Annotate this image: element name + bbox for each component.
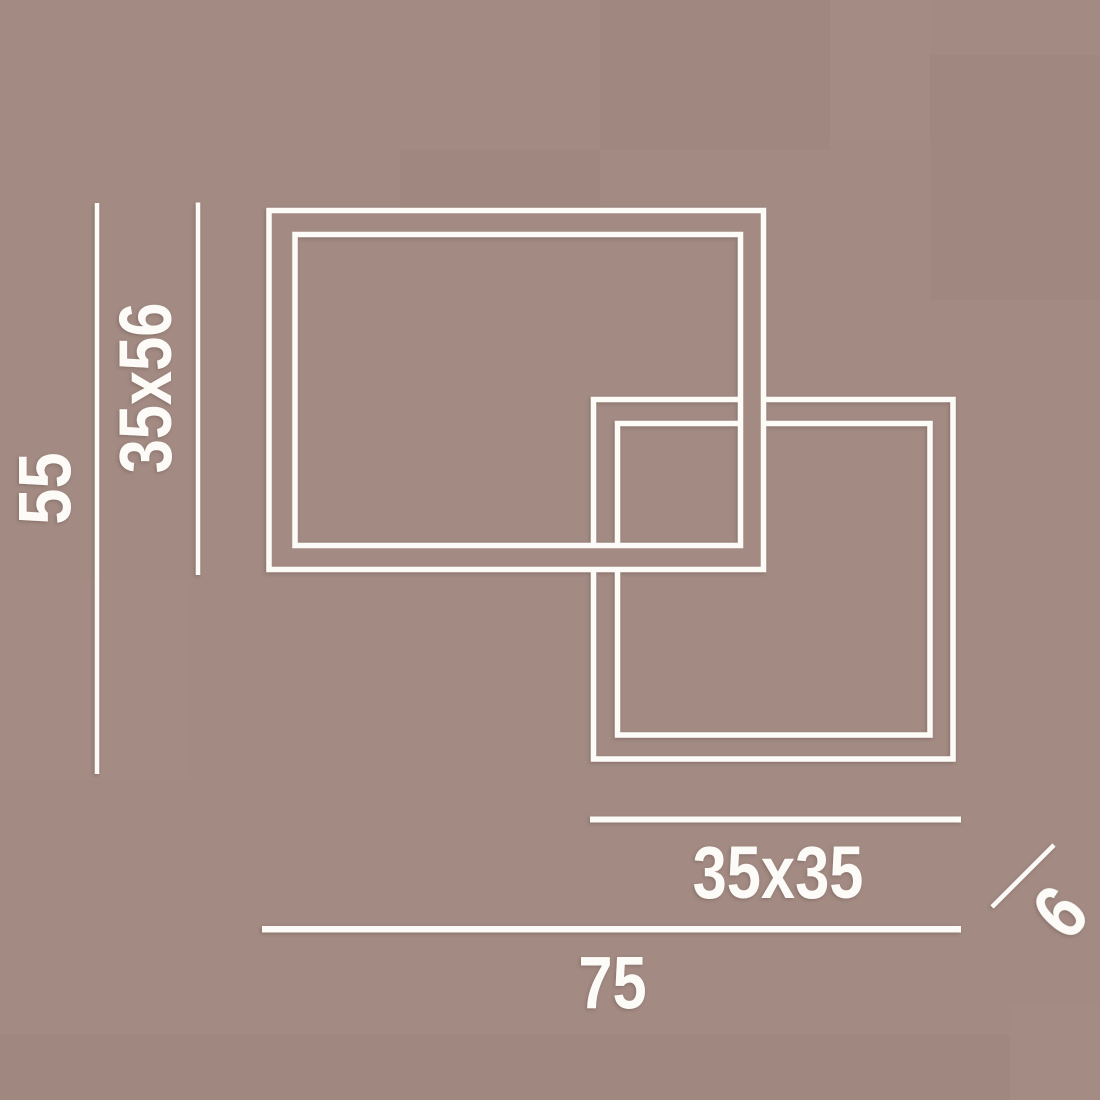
svg-text:35x56: 35x56: [105, 303, 188, 474]
svg-text:35x35: 35x35: [693, 832, 864, 915]
svg-text:55: 55: [4, 452, 87, 524]
svg-text:75: 75: [578, 942, 646, 1025]
